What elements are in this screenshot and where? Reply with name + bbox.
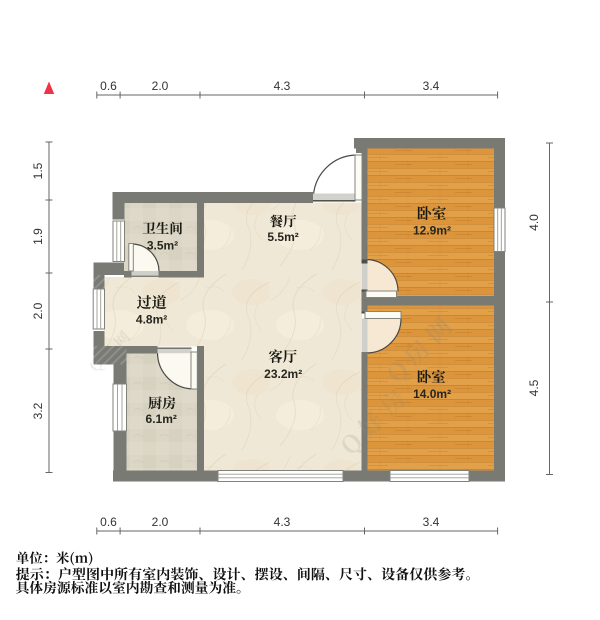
svg-text:2.0: 2.0 [152,515,169,529]
svg-text:3.2: 3.2 [31,402,45,419]
svg-text:1.9: 1.9 [31,228,45,245]
svg-text:0.6: 0.6 [100,515,117,529]
svg-text:2.0: 2.0 [152,79,169,93]
svg-text:3.4: 3.4 [423,79,440,93]
svg-text:4.3: 4.3 [274,79,291,93]
svg-text:4.5: 4.5 [527,379,541,396]
svg-text:23.2m²: 23.2m² [264,367,302,381]
svg-text:6.1m²: 6.1m² [146,412,177,426]
svg-text:12.9m²: 12.9m² [413,224,451,238]
svg-text:1.5: 1.5 [31,162,45,179]
svg-text:4.8m²: 4.8m² [136,312,167,326]
svg-text:4.3: 4.3 [274,515,291,529]
svg-text:3.5m²: 3.5m² [147,238,178,252]
svg-text:14.0m²: 14.0m² [413,387,451,401]
svg-text:4.0: 4.0 [527,214,541,231]
svg-text:2.0: 2.0 [31,302,45,319]
svg-text:0.6: 0.6 [100,79,117,93]
svg-text:3.4: 3.4 [423,515,440,529]
svg-text:5.5m²: 5.5m² [267,230,298,244]
